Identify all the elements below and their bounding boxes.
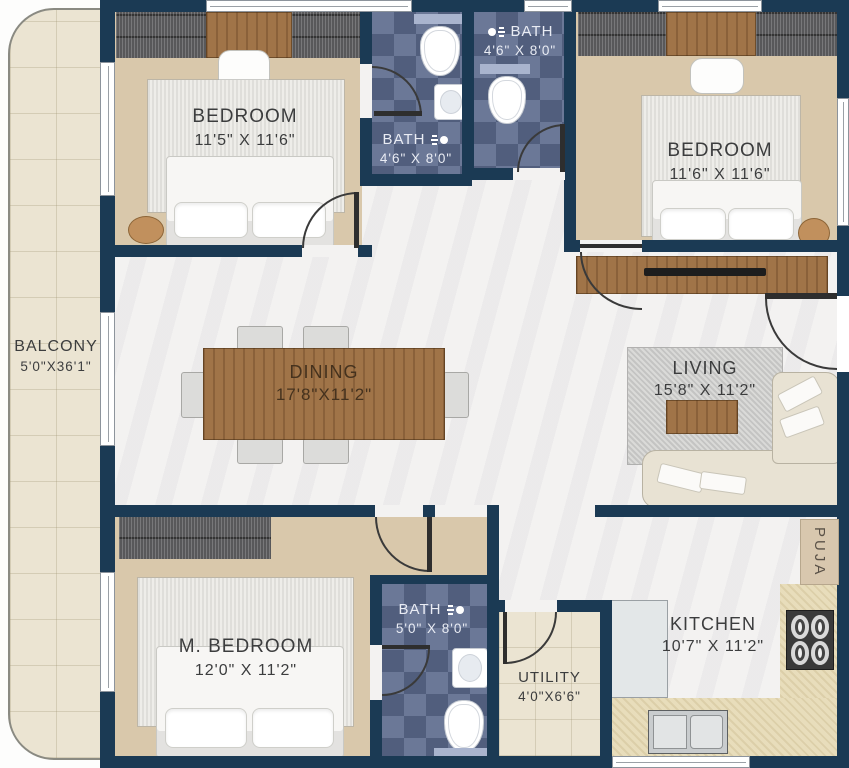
balcony-floor — [8, 8, 105, 760]
wardrobe — [756, 12, 837, 56]
wall — [600, 612, 612, 756]
bath-sink — [452, 648, 488, 688]
window — [837, 98, 849, 226]
door-leaf — [427, 517, 432, 572]
wardrobe — [578, 12, 666, 56]
bedroom-top-left-label: BEDROOM 11'5" X 11'6" — [145, 104, 345, 151]
wall — [487, 505, 499, 756]
door-opening — [360, 64, 372, 118]
dining-chair — [303, 438, 349, 464]
window — [612, 756, 750, 768]
dining-chair — [237, 438, 283, 464]
bath-top-right-label: BATH 4'6" X 8'0" — [474, 22, 566, 60]
door-opening — [505, 600, 557, 612]
entrance-door-leaf — [765, 293, 837, 299]
dining-label: DINING 17'8"X11'2" — [203, 360, 445, 407]
wall — [105, 505, 375, 517]
wall — [360, 174, 472, 186]
shower-icon — [431, 134, 449, 146]
bath-shelf — [480, 64, 530, 74]
puja-label: PUJA — [811, 527, 828, 577]
wall — [423, 505, 435, 517]
coffee-table — [666, 400, 738, 434]
window — [100, 62, 115, 196]
bath-shelf — [434, 748, 490, 756]
wardrobe — [119, 517, 271, 559]
balcony-sliding-door — [100, 312, 115, 446]
pillow — [660, 208, 726, 240]
window — [524, 0, 572, 12]
wall — [595, 505, 849, 517]
wardrobe — [292, 12, 362, 58]
door-leaf — [560, 124, 565, 172]
pillow — [165, 708, 247, 748]
pillow — [728, 208, 794, 240]
kitchen-label: KITCHEN 10'7" X 11'2" — [618, 612, 808, 658]
door-leaf — [503, 612, 507, 664]
window — [206, 0, 412, 12]
tv — [644, 268, 766, 276]
door-leaf — [354, 192, 359, 248]
pillow — [252, 708, 334, 748]
bath-top-left-label: BATH 4'6" X 8'0" — [370, 130, 462, 168]
bedroom-top-right-label: BEDROOM 11'6" X 11'6" — [620, 138, 820, 185]
balcony-label: BALCONY 5'0"X36'1" — [8, 336, 104, 376]
wardrobe — [116, 12, 206, 58]
dining-chair — [443, 372, 469, 418]
chair — [690, 58, 744, 94]
shower-icon — [447, 604, 465, 616]
window — [658, 0, 762, 12]
door-opening — [435, 505, 487, 517]
living-label: LIVING 15'8" X 11'2" — [628, 356, 782, 402]
floor-plan: PUJA BALCONY 5'0"X36'1" BEDROOM 11'5" X … — [0, 0, 849, 768]
bath-shelf — [414, 14, 464, 24]
door-opening — [837, 296, 849, 372]
door-leaf — [374, 111, 422, 116]
bedside-stool — [128, 216, 164, 244]
bath-master-label: BATH 5'0" X 8'0" — [382, 600, 482, 638]
wall — [462, 0, 474, 180]
master-bedroom-label: M. BEDROOM 12'0" X 11'2" — [143, 634, 349, 681]
puja-room: PUJA — [800, 519, 839, 585]
door-opening — [375, 505, 423, 517]
shower-icon — [487, 26, 505, 38]
door-leaf — [382, 645, 430, 649]
pillow — [174, 202, 248, 238]
utility-label: UTILITY 4'0"X6'6" — [499, 668, 600, 706]
door-leaf — [580, 244, 642, 248]
door-opening — [370, 645, 382, 700]
kitchen-sink — [648, 710, 728, 754]
window — [100, 572, 115, 692]
wardrobe — [666, 12, 756, 56]
wall — [370, 575, 487, 584]
